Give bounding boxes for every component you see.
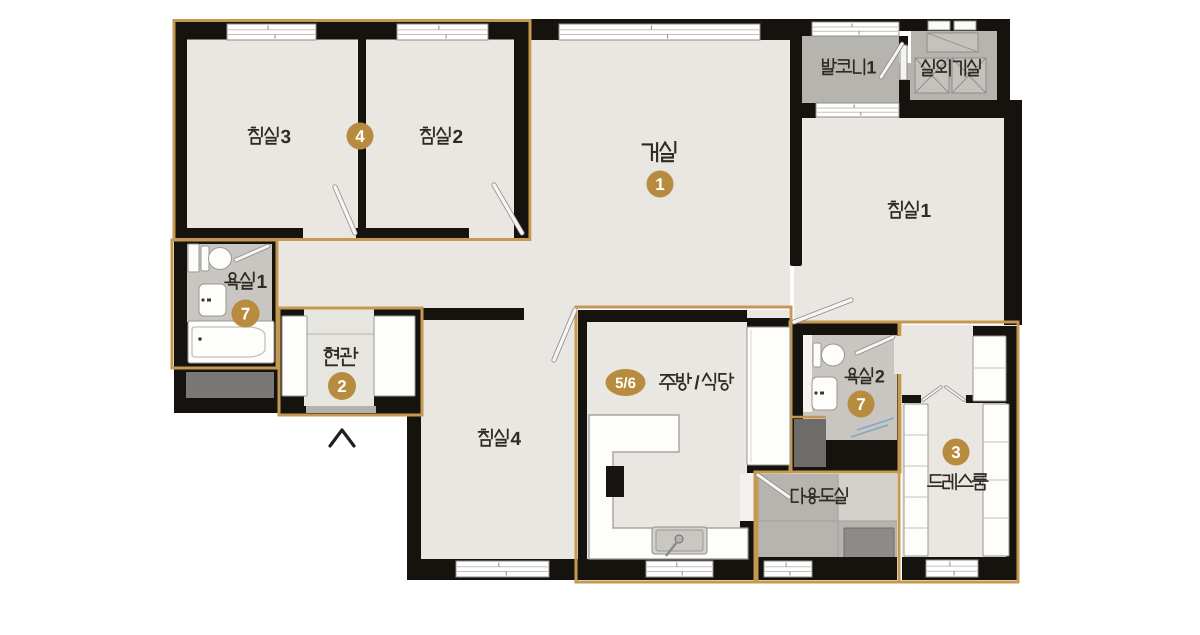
svg-text:5/6: 5/6	[615, 375, 636, 392]
svg-text:3: 3	[951, 443, 960, 462]
svg-text:2: 2	[453, 127, 464, 148]
svg-text:7: 7	[856, 395, 865, 414]
svg-text:7: 7	[241, 305, 250, 324]
svg-text:/: /	[694, 373, 700, 394]
svg-text:1: 1	[921, 201, 932, 222]
svg-text:4: 4	[355, 127, 365, 146]
svg-text:3: 3	[281, 127, 292, 148]
svg-text:1: 1	[655, 175, 664, 194]
svg-text:4: 4	[511, 429, 522, 450]
svg-text:2: 2	[875, 366, 885, 386]
svg-text:1: 1	[866, 57, 876, 77]
svg-text:2: 2	[337, 377, 346, 396]
svg-text:1: 1	[257, 272, 268, 293]
